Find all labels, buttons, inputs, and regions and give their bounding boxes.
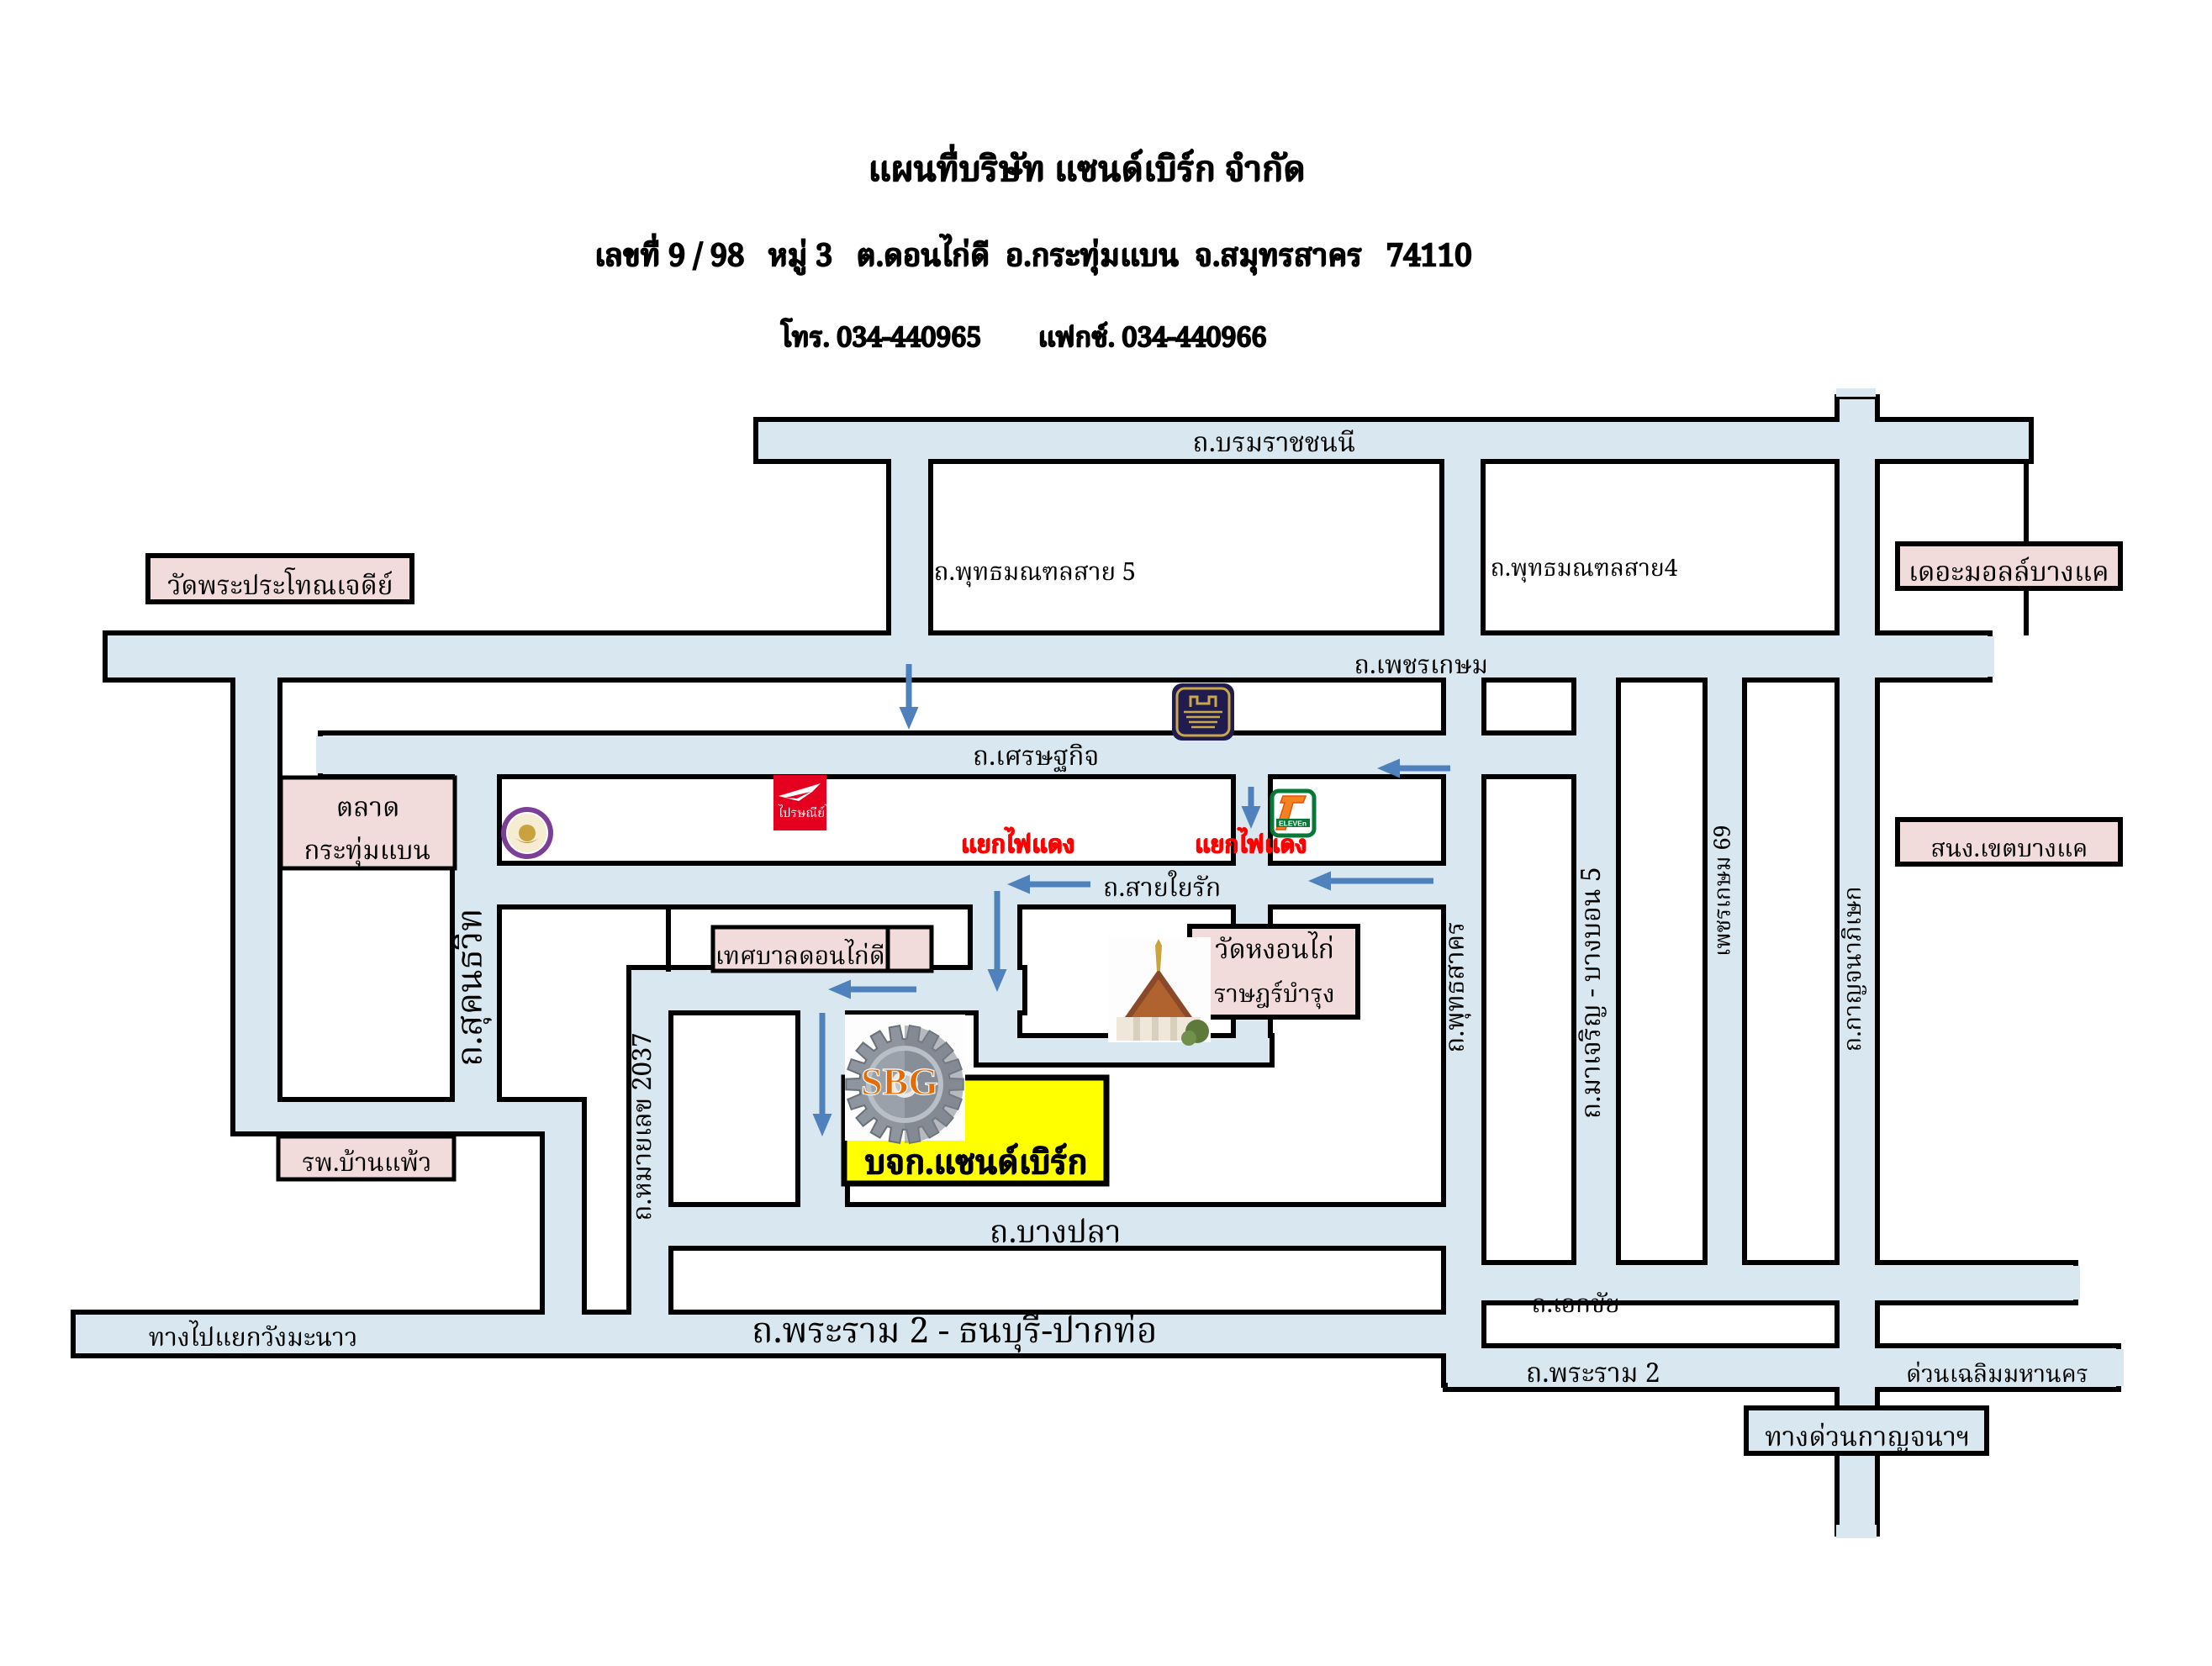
svg-text:SBG: SBG — [861, 1060, 938, 1103]
svg-text:ELEVEn: ELEVEn — [1279, 820, 1307, 828]
